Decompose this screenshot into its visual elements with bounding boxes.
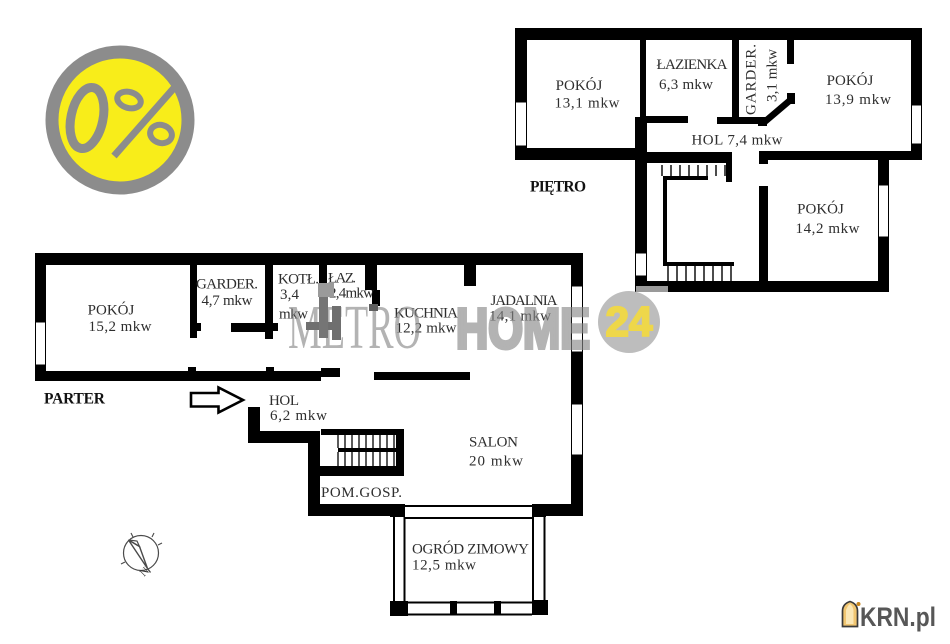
svg-text:13,9 mkw: 13,9 mkw — [825, 92, 891, 108]
svg-text:POKÓJ: POKÓJ — [88, 302, 135, 319]
svg-text:12,5 mkw: 12,5 mkw — [412, 558, 476, 574]
svg-text:4,7 mkw: 4,7 mkw — [202, 293, 253, 309]
svg-text:20 mkw: 20 mkw — [469, 454, 523, 470]
svg-text:KRN.pl: KRN.pl — [860, 602, 936, 632]
svg-text:POKÓJ: POKÓJ — [556, 77, 603, 94]
svg-text:14,2 mkw: 14,2 mkw — [796, 221, 860, 237]
svg-text:24: 24 — [606, 298, 654, 345]
svg-text:3,1 mkw: 3,1 mkw — [765, 49, 781, 102]
svg-text:KOTŁ.: KOTŁ. — [278, 272, 319, 288]
svg-text:POKÓJ: POKÓJ — [827, 72, 874, 89]
svg-text:PIĘTRO: PIĘTRO — [530, 179, 586, 196]
svg-text:6,3 mkw: 6,3 mkw — [659, 77, 713, 93]
svg-text:SALON: SALON — [469, 435, 518, 451]
svg-text:HOL: HOL — [269, 393, 299, 409]
svg-text:GARDER.: GARDER. — [196, 277, 258, 293]
svg-text:POM.GOSP.: POM.GOSP. — [321, 485, 402, 501]
svg-text:GARDER.: GARDER. — [744, 44, 760, 115]
svg-text:OGRÓD ZIMOWY: OGRÓD ZIMOWY — [412, 541, 529, 558]
svg-text:PARTER: PARTER — [44, 391, 106, 408]
svg-text:POKÓJ: POKÓJ — [797, 201, 844, 218]
svg-text:HOL 7,4 mkw: HOL 7,4 mkw — [692, 133, 783, 149]
svg-text:ŁAZIENKA: ŁAZIENKA — [657, 57, 728, 73]
svg-text:15,2 mkw: 15,2 mkw — [89, 319, 152, 335]
svg-text:HOME: HOME — [456, 297, 590, 361]
svg-text:6,2 mkw: 6,2 mkw — [270, 408, 327, 424]
svg-text:13,1 mkw: 13,1 mkw — [555, 96, 620, 112]
